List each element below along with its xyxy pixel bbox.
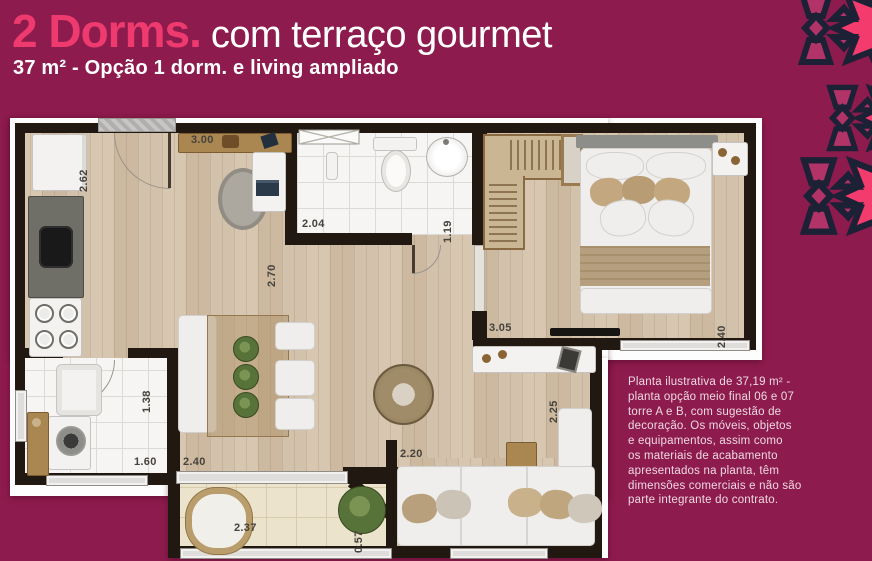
window-bedroom (620, 340, 750, 351)
sofa-pillow (435, 489, 472, 520)
bedside-decor (718, 148, 727, 157)
wall-laundry-top-b (128, 348, 180, 358)
window-sofa (450, 548, 548, 559)
stove-burner (59, 330, 78, 349)
dim-label: 3.05 (489, 322, 512, 334)
table-plant (233, 364, 259, 390)
dim-label: 2.37 (234, 522, 257, 534)
page-subtitle: 37 m² - Opção 1 dorm. e living ampliado (13, 57, 399, 80)
title-highlight: 2 Dorms. (12, 5, 201, 57)
dim-label: 1.38 (141, 390, 153, 413)
dim-label: 2.40 (183, 456, 206, 468)
dim-label: 2.70 (266, 264, 278, 287)
window-laundry-bottom (46, 475, 148, 486)
dim-label: 2.40 (716, 325, 728, 348)
closet-hangers (489, 180, 517, 242)
bathroom-door-leaf (412, 245, 415, 273)
dim-label: 1.19 (442, 220, 454, 243)
laundry-tank (56, 364, 102, 416)
entry-mat (98, 118, 176, 132)
wall-bedroom-corner-post (472, 311, 487, 340)
bed-pillow (646, 152, 706, 180)
dim-label: 2.04 (302, 218, 325, 230)
dim-label: 0.57 (353, 530, 365, 553)
page-title: 2 Dorms.com terraço gourmet (12, 4, 552, 58)
tv (550, 328, 620, 336)
shelf-decor (32, 418, 41, 427)
table-plant (233, 336, 259, 362)
bag-decor (222, 135, 239, 148)
dim-label: 2.20 (400, 448, 423, 460)
lounge-chair (186, 488, 252, 554)
dim-label: 2.62 (78, 169, 90, 192)
toilet-tank (373, 137, 417, 151)
wall-stub-living-terrace (386, 440, 397, 558)
faucet (443, 139, 449, 145)
dim-label: 1.60 (134, 456, 157, 468)
title-rest: com terraço gourmet (211, 14, 552, 56)
papasan-chair (373, 364, 434, 425)
kitchen-sink (39, 226, 73, 268)
washer-door (56, 426, 86, 456)
shower-column (326, 152, 338, 180)
partition-bedroom-slider (474, 245, 485, 313)
bedside-decor (731, 156, 740, 165)
sliding-door-terrace (176, 471, 348, 484)
entry-door-leaf (168, 133, 171, 188)
dim-label: 3.00 (191, 134, 214, 146)
console-decor (498, 350, 507, 359)
toilet-bowl (381, 150, 411, 192)
page: 2 Dorms.com terraço gourmet 37 m² - Opçã… (0, 0, 872, 561)
window-laundry (15, 390, 27, 442)
dining-chair (275, 398, 315, 430)
bed-foot-quilt (580, 288, 712, 314)
dim-label: 2.25 (548, 400, 560, 423)
stove-burner (35, 330, 54, 349)
wall-bathroom-bottom (285, 233, 412, 245)
headboard (576, 135, 718, 148)
disclaimer-text: Planta ilustrativa de 37,19 m² - planta … (628, 375, 804, 508)
desk-laptop (256, 180, 279, 196)
sofa-chaise (558, 408, 592, 470)
dining-chair (275, 360, 315, 396)
bedside-table (712, 142, 748, 176)
bed-blanket (580, 246, 710, 286)
stove-burner (59, 304, 78, 323)
console-decor (482, 354, 491, 363)
stove-burner (35, 304, 54, 323)
table-plant (233, 392, 259, 418)
bathroom-window-icon (298, 129, 360, 145)
dining-chair (275, 322, 315, 350)
terrace-plant (338, 486, 386, 534)
